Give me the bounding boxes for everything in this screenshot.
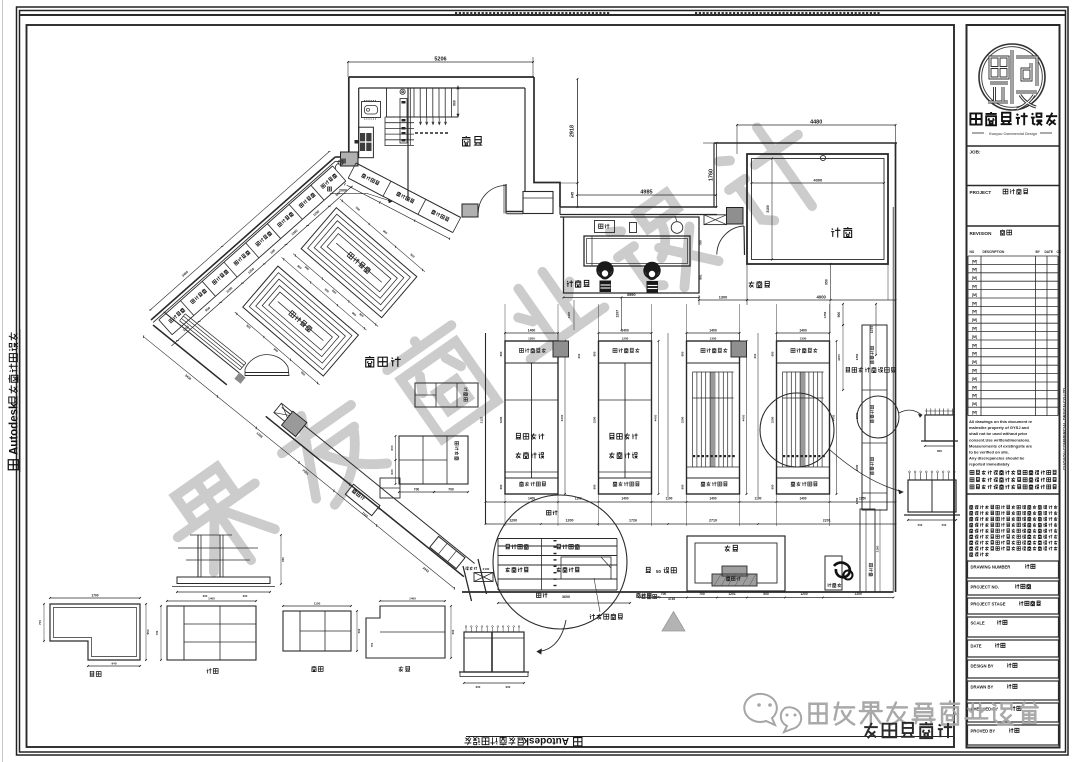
svg-text:3990: 3990 [627,292,637,297]
svg-text:to be verified on site.: to be verified on site. [969,450,1009,455]
svg-text:shall not be used without prio: shall not be used without prior [969,431,1028,436]
svg-text:3200: 3200 [593,416,597,423]
svg-text:1297: 1297 [616,310,620,318]
svg-text:Guoyou Commercial Design: Guoyou Commercial Design [989,132,1037,136]
svg-text:1950: 1950 [859,497,866,501]
svg-text:3122: 3122 [480,416,484,423]
svg-text:1350: 1350 [855,353,859,360]
svg-text:1400: 1400 [208,596,215,600]
svg-text:[M]: [M] [972,293,977,297]
svg-text:PROVED BY: PROVED BY [971,729,996,734]
svg-text:600: 600 [771,351,775,356]
svg-text:4400: 4400 [654,414,658,421]
svg-text:[M]: [M] [972,377,977,381]
svg-text:1300: 1300 [800,337,807,341]
svg-text:4000: 4000 [817,294,827,299]
svg-text:NO: NO [970,250,975,254]
svg-text:1200: 1200 [528,337,535,341]
svg-text:REVISION: REVISION [970,231,993,236]
svg-text:4736: 4736 [668,597,675,601]
svg-text:600: 600 [593,484,597,489]
svg-text:600: 600 [506,685,511,689]
svg-text:700: 700 [661,592,667,596]
svg-text:All drawings on this document: All drawings on this document re [969,419,1033,424]
svg-text:1100: 1100 [314,601,321,605]
svg-text:3200: 3200 [771,416,775,423]
svg-text:600: 600 [499,351,503,356]
svg-text:[M]: [M] [972,285,977,289]
svg-text:1400: 1400 [709,497,716,501]
svg-text:881: 881 [699,274,703,280]
svg-text:DESCRIPTION: DESCRIPTION [983,250,1005,254]
svg-text:900: 900 [281,557,285,562]
svg-text:500: 500 [942,523,947,527]
svg-text:GUOYOU COMMERCIAL DESIGN CO.LT: GUOYOU COMMERCIAL DESIGN CO.LTD [1062,388,1067,470]
svg-text:940: 940 [111,661,116,665]
svg-text:600: 600 [451,629,455,634]
svg-text:500: 500 [763,592,769,596]
svg-text:1100: 1100 [755,497,762,501]
svg-text:1400: 1400 [799,328,807,332]
svg-text:3100: 3100 [766,205,770,213]
svg-text:[M]: [M] [972,259,977,263]
svg-text:5206: 5206 [434,56,446,62]
svg-text:1200: 1200 [509,519,517,523]
svg-text:DESIGN BY: DESIGN BY [971,664,994,669]
svg-text:1400: 1400 [799,497,806,501]
svg-text:2000: 2000 [339,189,347,193]
svg-text:PROJECT NO.: PROJECT NO. [971,585,999,590]
svg-text:1400: 1400 [709,328,717,332]
svg-text:4400: 4400 [837,354,841,361]
svg-text:1300: 1300 [719,295,727,299]
svg-text:950: 950 [825,279,829,285]
svg-text:1075: 1075 [870,326,874,334]
svg-text:604: 604 [753,353,757,358]
svg-text:1297: 1297 [567,311,571,318]
svg-text:[M]: [M] [972,402,977,406]
svg-text:2100: 2100 [483,567,490,571]
svg-text:1200: 1200 [855,592,863,596]
svg-text:1356: 1356 [823,311,827,318]
svg-text:1400: 1400 [528,328,536,332]
svg-text:1201: 1201 [728,592,736,596]
svg-text:500: 500 [357,628,361,633]
svg-text:600: 600 [771,484,775,489]
svg-text:3200: 3200 [499,416,503,423]
svg-text:DATE: DATE [1045,250,1053,254]
svg-text:700: 700 [370,642,374,647]
svg-text:1400: 1400 [621,497,628,501]
svg-text:1200: 1200 [566,519,574,523]
svg-text:[M]: [M] [972,369,977,373]
svg-text:604: 604 [577,353,581,358]
svg-text:600: 600 [453,100,457,106]
svg-text:CK: CK [1057,250,1062,254]
svg-text:300: 300 [203,594,208,598]
svg-text:2201: 2201 [823,519,831,523]
svg-text:600: 600 [476,685,481,689]
svg-text:PROJECT STAGE: PROJECT STAGE [971,602,1006,607]
svg-text:1200: 1200 [800,592,808,596]
svg-text:mainsthe property of GYSJ and: mainsthe property of GYSJ and [969,425,1029,430]
svg-text:[M]: [M] [972,360,977,364]
svg-text:[M]: [M] [972,343,977,347]
svg-text:SCALE: SCALE [971,621,985,626]
svg-text:600: 600 [681,351,685,356]
svg-text:600: 600 [390,445,394,450]
svg-text:4400: 4400 [742,414,746,421]
svg-text:3200: 3200 [681,416,685,423]
svg-text:700: 700 [414,487,420,491]
svg-text:2918: 2918 [570,125,576,137]
svg-text:reported immediately: reported immediately [969,462,1010,467]
svg-text:Measurements of existingsite a: Measurements of existingsite are [969,443,1033,448]
svg-text:PROJECT: PROJECT [970,190,992,195]
svg-text:2710: 2710 [709,519,717,523]
svg-text:600: 600 [593,351,597,356]
svg-text:DRAWN BY: DRAWN BY [971,685,994,690]
svg-text:[M]: [M] [972,411,977,415]
svg-text:1400: 1400 [621,328,629,332]
svg-text:1200: 1200 [622,337,629,341]
svg-text:4985: 4985 [640,189,652,195]
svg-text:DATE: DATE [971,644,982,649]
svg-text:[M]: [M] [972,327,977,331]
svg-text:600: 600 [681,484,685,489]
svg-text:645: 645 [571,192,575,198]
svg-text:4400: 4400 [560,414,564,421]
svg-text:900: 900 [837,312,841,318]
svg-text:[M]: [M] [972,335,977,339]
svg-text:[M]: [M] [972,318,977,322]
svg-text:700: 700 [155,630,159,635]
svg-text:[M]: [M] [972,268,977,272]
svg-text:1300: 1300 [710,337,717,341]
svg-text:700: 700 [38,620,42,625]
svg-text:[M]: [M] [972,394,977,398]
svg-text:[M]: [M] [972,310,977,314]
svg-text:700: 700 [699,592,705,596]
svg-text:1100: 1100 [666,497,673,501]
svg-text:[M]: [M] [972,352,977,356]
svg-text:300: 300 [243,594,248,598]
svg-text:630: 630 [390,469,394,474]
svg-text:2160: 2160 [876,545,880,552]
svg-text:[M]: [M] [972,385,977,389]
svg-text:Autodesk: Autodesk [9,402,21,455]
svg-text:4480: 4480 [810,119,822,125]
svg-text:DRAWING NUMBER: DRAWING NUMBER [971,565,1011,570]
svg-text:1760: 1760 [709,169,715,181]
svg-text:790: 790 [699,240,703,246]
svg-text:1700: 1700 [91,593,98,597]
svg-text:consent.Use writtendimensions.: consent.Use writtendimensions. [969,437,1030,442]
svg-text:3600: 3600 [562,595,570,599]
svg-text:950: 950 [146,629,150,634]
svg-text:500: 500 [918,523,923,527]
svg-text:1850: 1850 [855,497,859,504]
svg-text:[M]: [M] [972,301,977,305]
svg-text:JOB:: JOB: [970,150,981,155]
svg-text:600: 600 [499,484,503,489]
svg-text:[M]: [M] [972,276,977,280]
svg-text:1400: 1400 [409,596,416,600]
svg-text:600: 600 [937,449,942,453]
svg-text:4000: 4000 [813,177,823,182]
svg-text:Any discrepancies should be: Any discrepancies should be [969,456,1025,461]
svg-text:50: 50 [656,569,661,574]
svg-text:700: 700 [448,487,454,491]
svg-text:1726: 1726 [629,519,637,523]
